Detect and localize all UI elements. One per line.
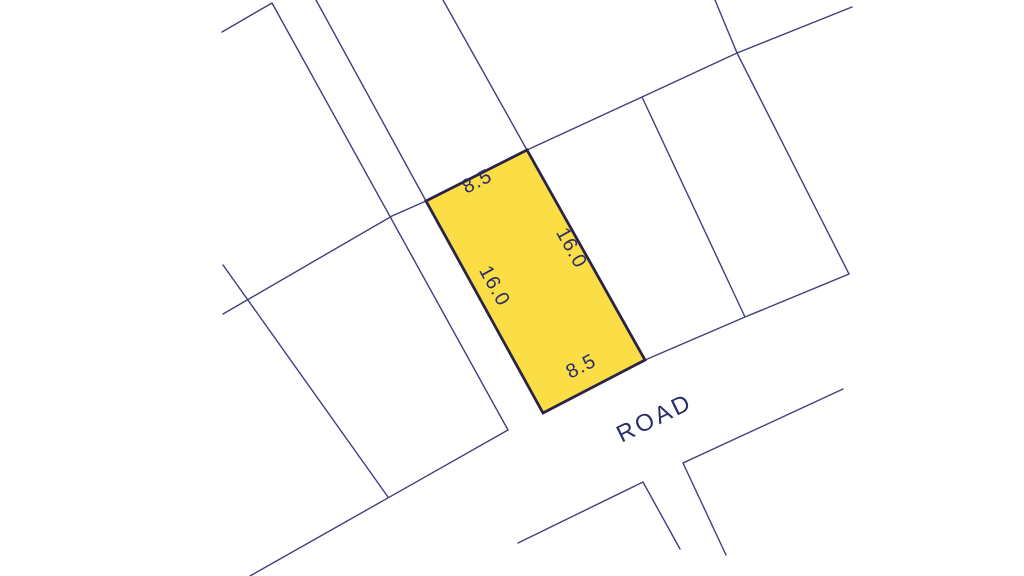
middle-plot-boundary-line xyxy=(642,97,745,317)
highlighted-parcel[interactable] xyxy=(426,150,645,413)
road-name-label: ROAD xyxy=(612,388,697,448)
east-block-boundary-line xyxy=(645,53,849,360)
parcel-right-edge-extension-line xyxy=(443,0,527,150)
map-canvas: 8.5 16.0 16.0 8.5 ROAD xyxy=(0,0,1024,576)
south-frontage-west-line xyxy=(518,482,680,549)
north-plot-boundary-line xyxy=(715,0,737,53)
parcel-left-edge-extension-line xyxy=(316,0,426,201)
south-frontage-east-line xyxy=(683,389,843,555)
southwest-plot-boundary-line xyxy=(223,265,388,497)
plot-map: 8.5 16.0 16.0 8.5 ROAD xyxy=(0,0,1024,576)
